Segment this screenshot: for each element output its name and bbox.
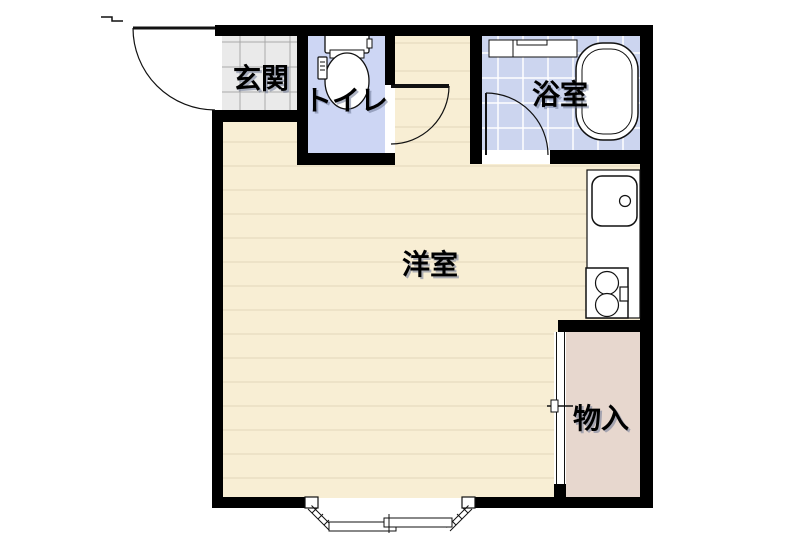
wall-bath-bottom <box>550 150 640 164</box>
bay-window-sash <box>384 518 452 527</box>
wall-bottom-left <box>212 497 305 508</box>
room-label-bathroom: 浴室 <box>532 78 588 110</box>
kitchen-unit <box>586 170 640 318</box>
stove-knob <box>620 287 628 301</box>
wall-bottom-right <box>475 497 653 508</box>
wall-right <box>640 25 653 508</box>
bay-window-icon <box>305 497 475 533</box>
wall-storage-top <box>558 320 640 332</box>
entrance-door <box>101 17 215 110</box>
burner <box>596 272 619 295</box>
entrance-door-break-mark <box>101 17 123 21</box>
washlet-panel <box>318 57 327 79</box>
closet-door-handle <box>551 400 558 412</box>
bay-window-jamb <box>462 497 475 508</box>
wall-genkan-bottom <box>222 110 308 122</box>
toilet-tank-button <box>367 39 372 48</box>
main-room-floor <box>395 36 470 165</box>
main-room-floor <box>222 122 297 165</box>
main-room-floor <box>222 320 558 332</box>
stove-icon <box>586 268 628 318</box>
room-label-main-room: 洋室 <box>402 248 458 280</box>
wall-toilet-right <box>385 36 395 85</box>
wall-bath-left <box>470 36 482 164</box>
floor-plan: 玄関 トイレ 浴室 洋室 物入 <box>0 0 785 556</box>
burner <box>596 294 619 317</box>
floor-plan-page: 玄関 トイレ 浴室 洋室 物入 <box>0 0 785 556</box>
main-room-floor <box>222 164 640 320</box>
wall-closet-door-stub <box>554 484 566 498</box>
kitchen-sink-icon <box>592 176 637 226</box>
room-label-storage: 物入 <box>573 403 629 434</box>
room-label-genkan: 玄関 <box>233 62 289 94</box>
entrance-door-arc <box>133 28 215 110</box>
wall-top <box>215 25 652 36</box>
wall-left <box>212 110 223 508</box>
room-label-toilet: トイレ <box>304 85 388 116</box>
main-room-floor <box>222 332 554 498</box>
wall-toilet-bottom <box>297 153 395 165</box>
faucet-icon <box>620 196 631 207</box>
bath-vanity-icon <box>489 40 577 57</box>
bay-window-jamb <box>305 497 318 508</box>
